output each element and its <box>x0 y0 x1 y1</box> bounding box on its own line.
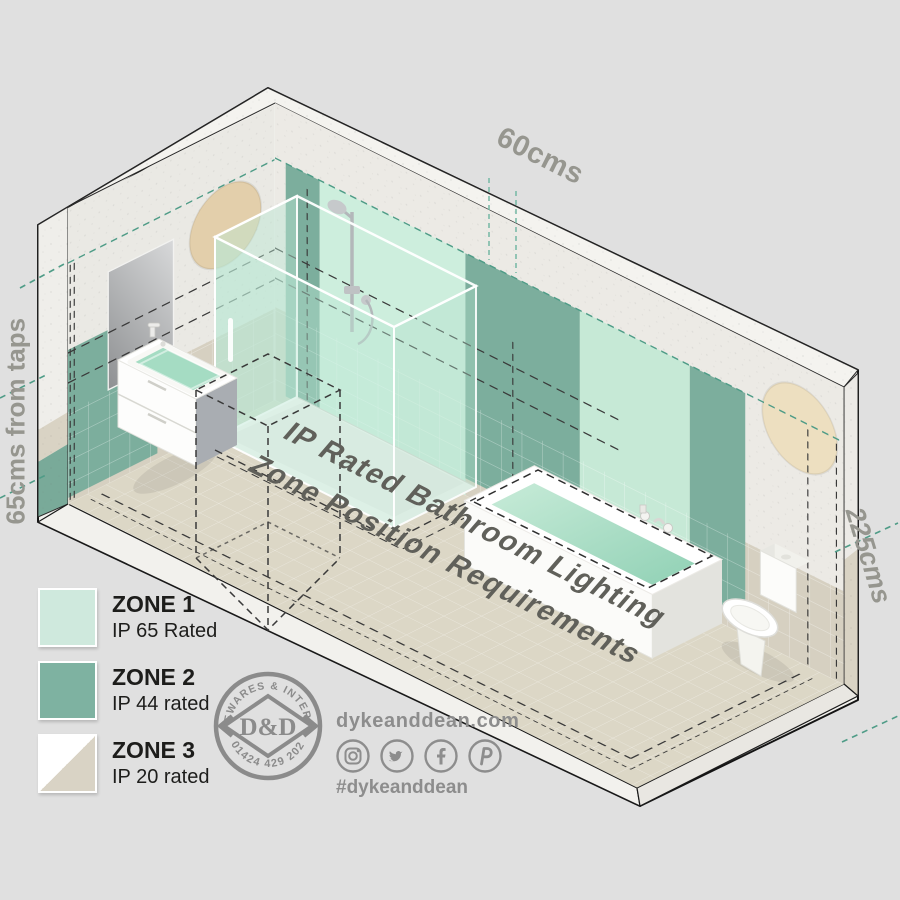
zone3-swatch <box>38 734 97 793</box>
zone-legend: ZONE 1 IP 65 Rated ZONE 2 IP 44 rated ZO… <box>38 588 217 807</box>
social-icons <box>334 737 520 775</box>
website-link[interactable]: dykeanddean.com <box>336 710 520 733</box>
legend-row-zone3: ZONE 3 IP 20 rated <box>38 734 217 793</box>
zone3-label: ZONE 3 <box>112 737 209 765</box>
dimension-label-65cms: 65cms from taps <box>1 335 32 525</box>
shower-door-handle <box>228 318 233 362</box>
logo-monogram: D&D <box>240 714 297 741</box>
zone2-label: ZONE 2 <box>112 664 209 692</box>
infographic-canvas: 60cms 65cms from taps 225cms IP Rated Ba… <box>0 0 900 900</box>
dyke-and-dean-logo: HOMEWARES & INTERIORS 01424 429 202 D&D <box>202 660 334 792</box>
pinterest-icon[interactable] <box>466 737 504 775</box>
zone2-swatch <box>38 661 97 720</box>
facebook-icon[interactable] <box>422 737 460 775</box>
legend-row-zone1: ZONE 1 IP 65 Rated <box>38 588 217 647</box>
zone1-label: ZONE 1 <box>112 591 217 619</box>
legend-row-zone2: ZONE 2 IP 44 rated <box>38 661 217 720</box>
instagram-icon[interactable] <box>334 737 372 775</box>
social-block: dykeanddean.com #dykeanddean <box>336 710 520 799</box>
zone1-rating: IP 65 Rated <box>112 619 217 644</box>
zone3-rating: IP 20 rated <box>112 765 209 790</box>
zone2-rating: IP 44 rated <box>112 692 209 717</box>
twitter-icon[interactable] <box>378 737 416 775</box>
zone1-swatch <box>38 588 97 647</box>
hashtag-text: #dykeanddean <box>336 777 520 799</box>
